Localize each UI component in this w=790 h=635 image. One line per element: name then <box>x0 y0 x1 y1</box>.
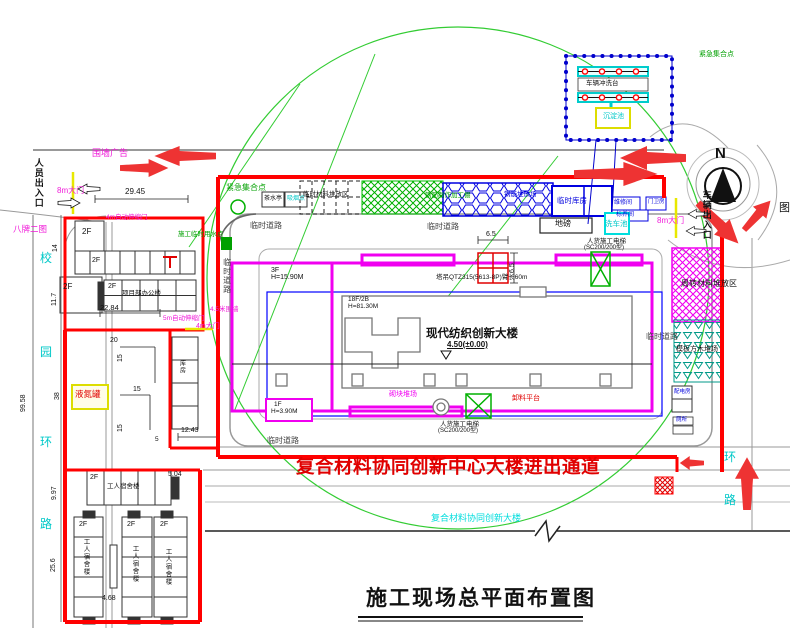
hoist-bottom-line2: (SC200/200型) <box>438 428 478 434</box>
guard-room-label: 门卫房 <box>648 200 665 206</box>
weighbridge-label: 地磅 <box>555 220 571 229</box>
dorm3-label: 工人宿舍楼 <box>164 548 171 586</box>
unload-platform-label: 卸料平台 <box>512 395 540 403</box>
tower-crane-label: 塔吊QTZ315(5613-8P)臂长60m <box>436 274 527 281</box>
dim-6-5-a: 6.5 <box>486 231 496 239</box>
curing-room-label: 标养间 <box>616 212 634 218</box>
main-building-elevation: 4.50(±0.00) <box>447 341 488 350</box>
people-entrance-label: 人员出入口 <box>33 158 43 208</box>
wash-platform-label: 车辆冲洗台 <box>586 80 619 87</box>
dim-12-43: 12.43 <box>181 427 199 435</box>
ln2-tank-label: 液氮罐 <box>75 390 101 399</box>
dim-4-68: 4.68 <box>102 595 116 603</box>
campus-road-char-2: 园 <box>40 346 52 359</box>
dorm2-label: 工人宿舍楼 <box>131 545 138 583</box>
assembly-point-circle <box>231 200 245 214</box>
dim-11-7: 11.7 <box>51 293 59 306</box>
gate-4m-label: 4m大门 <box>196 323 220 331</box>
office-row-2f: 2F <box>92 257 100 265</box>
water-point-label: 施工临时用水点 <box>178 231 224 238</box>
dorm3-2f: 2F <box>160 521 168 529</box>
access-notice: 复合材料协同创新中心大楼进出通道 <box>296 457 600 477</box>
material-stack-label: 临时材料堆放区 <box>303 191 349 198</box>
dim-15-b: 15 <box>133 386 141 394</box>
office-a-2f: 2F <box>82 228 91 237</box>
assembly-point-label: 紧急集合点 <box>226 184 266 193</box>
sediment-pool-label: 沉淀池 <box>603 113 624 121</box>
hoist-bottom-line1: 人货施工电梯 <box>440 421 479 428</box>
assembly-point-2-label: 紧急集合点 <box>699 51 734 59</box>
auto-gate-4m-label: 4m自动伸缩门 <box>106 214 148 221</box>
office-b-2f: 2F <box>63 283 72 292</box>
tree <box>221 237 232 250</box>
campus-road-char-4: 路 <box>40 518 52 531</box>
dim-14: 14 <box>52 244 60 252</box>
title-underline <box>358 617 583 621</box>
south-building-label: 复合材料协同创新大楼 <box>431 514 521 524</box>
dim-38: 38 <box>54 392 62 400</box>
tea-room-label: 茶水亭 <box>264 196 282 202</box>
storage-label: 库房 <box>178 360 184 374</box>
building-footprint <box>232 287 652 415</box>
rebar-yard-label: 钢筋堆放场 <box>504 191 537 198</box>
drawing-title: 施工现场总平面布置图 <box>366 588 596 611</box>
danger-hatch-box <box>655 477 673 494</box>
tower-height: H=81.30M <box>348 303 378 310</box>
temp-road-1: 临时道路 <box>250 222 282 231</box>
campus-road-char-3: 环 <box>40 436 52 449</box>
podium-height: H=15.90M <box>271 274 304 282</box>
annex-height: H=3.90M <box>271 408 298 415</box>
vehicle-entrance-label: 车辆出入口 <box>701 190 711 240</box>
hoist-right-line2: (SC200/200型) <box>584 245 624 251</box>
site-plan-drawing: 围墙广告 人员出入口 8m大门 29.45 八牌二图 校 园 环 路 99.58… <box>0 0 790 635</box>
warehouse-label: 临时库房 <box>557 197 587 205</box>
dim-15-a: 15 <box>117 354 125 362</box>
dim-29-45: 29.45 <box>125 188 145 197</box>
dorm-strip-2f: 2F <box>90 474 98 482</box>
dim-22-84: 22.84 <box>100 304 119 312</box>
tower-floors: 18F/2B <box>348 296 369 303</box>
wash-pool-label: 洗车池 <box>605 220 628 228</box>
gate-8m-left-label: 8m大门 <box>57 187 84 196</box>
hoist-right-line1: 人货施工电梯 <box>587 238 626 245</box>
block-yard-label: 砌块堆场 <box>389 391 417 399</box>
office-building-label: 项目部办公楼 <box>122 290 161 297</box>
office-c-2f: 2F <box>108 283 116 291</box>
rebar-yard-hex <box>443 183 553 216</box>
turnover-yard-label: 周转材料堆放区 <box>681 280 737 289</box>
temp-road-3: 临时道路 <box>222 258 231 294</box>
legend-partial-label: 图 <box>779 203 790 215</box>
temp-road-2: 临时道路 <box>427 223 459 232</box>
rebar-shed-label: 钢筋制作加工棚 <box>425 192 471 199</box>
dorm1-2f: 2F <box>79 521 87 529</box>
dorm1-label: 工人宿舍楼 <box>82 538 89 576</box>
dim-99-58: 99.58 <box>20 394 28 412</box>
annex-floors: 1F <box>274 401 282 408</box>
fence-ad-label: 围墙广告 <box>92 149 128 159</box>
left-compound <box>60 221 198 624</box>
eight-boards-label: 八牌二图 <box>13 225 47 234</box>
east-road-char-2: 路 <box>724 494 736 507</box>
east-road-char-1: 环 <box>724 451 736 464</box>
dim-9-97: 9.97 <box>51 486 59 500</box>
dim-15-c: 15 <box>117 424 125 432</box>
dorm-strip-label: 工人宿舍楼 <box>107 483 140 490</box>
dim-20: 20 <box>110 337 118 345</box>
gate-8m-right-label: 8m大门 <box>657 217 684 226</box>
auto-gate-5m-label: 5m自动伸缩门 <box>163 315 205 322</box>
temp-road-5: 临时道路 <box>267 437 299 446</box>
power-room-label: 配电房 <box>674 390 691 396</box>
dim-25-6: 25.6 <box>50 558 58 572</box>
repair-room-label: 维修间 <box>614 200 632 206</box>
wall-4-5m-label: 4.5米围墙 <box>210 306 239 313</box>
main-building-name: 现代纺织创新大楼 <box>426 328 518 340</box>
campus-road-char-1: 校 <box>40 252 52 265</box>
dorm2-2f: 2F <box>127 521 135 529</box>
dim-5: 5 <box>155 436 159 443</box>
compass-n-label: N <box>715 146 726 162</box>
dim-6-5-b: 6.5 <box>509 263 517 273</box>
plan-linework <box>0 0 790 635</box>
formwork-yard-label: 模板方木堆场 <box>676 346 718 354</box>
right-zones <box>672 248 722 434</box>
dim-5-04: 5.04 <box>168 471 182 479</box>
temp-road-4: 临时道路 <box>646 333 678 342</box>
toilet-label: 厕所 <box>676 418 687 424</box>
